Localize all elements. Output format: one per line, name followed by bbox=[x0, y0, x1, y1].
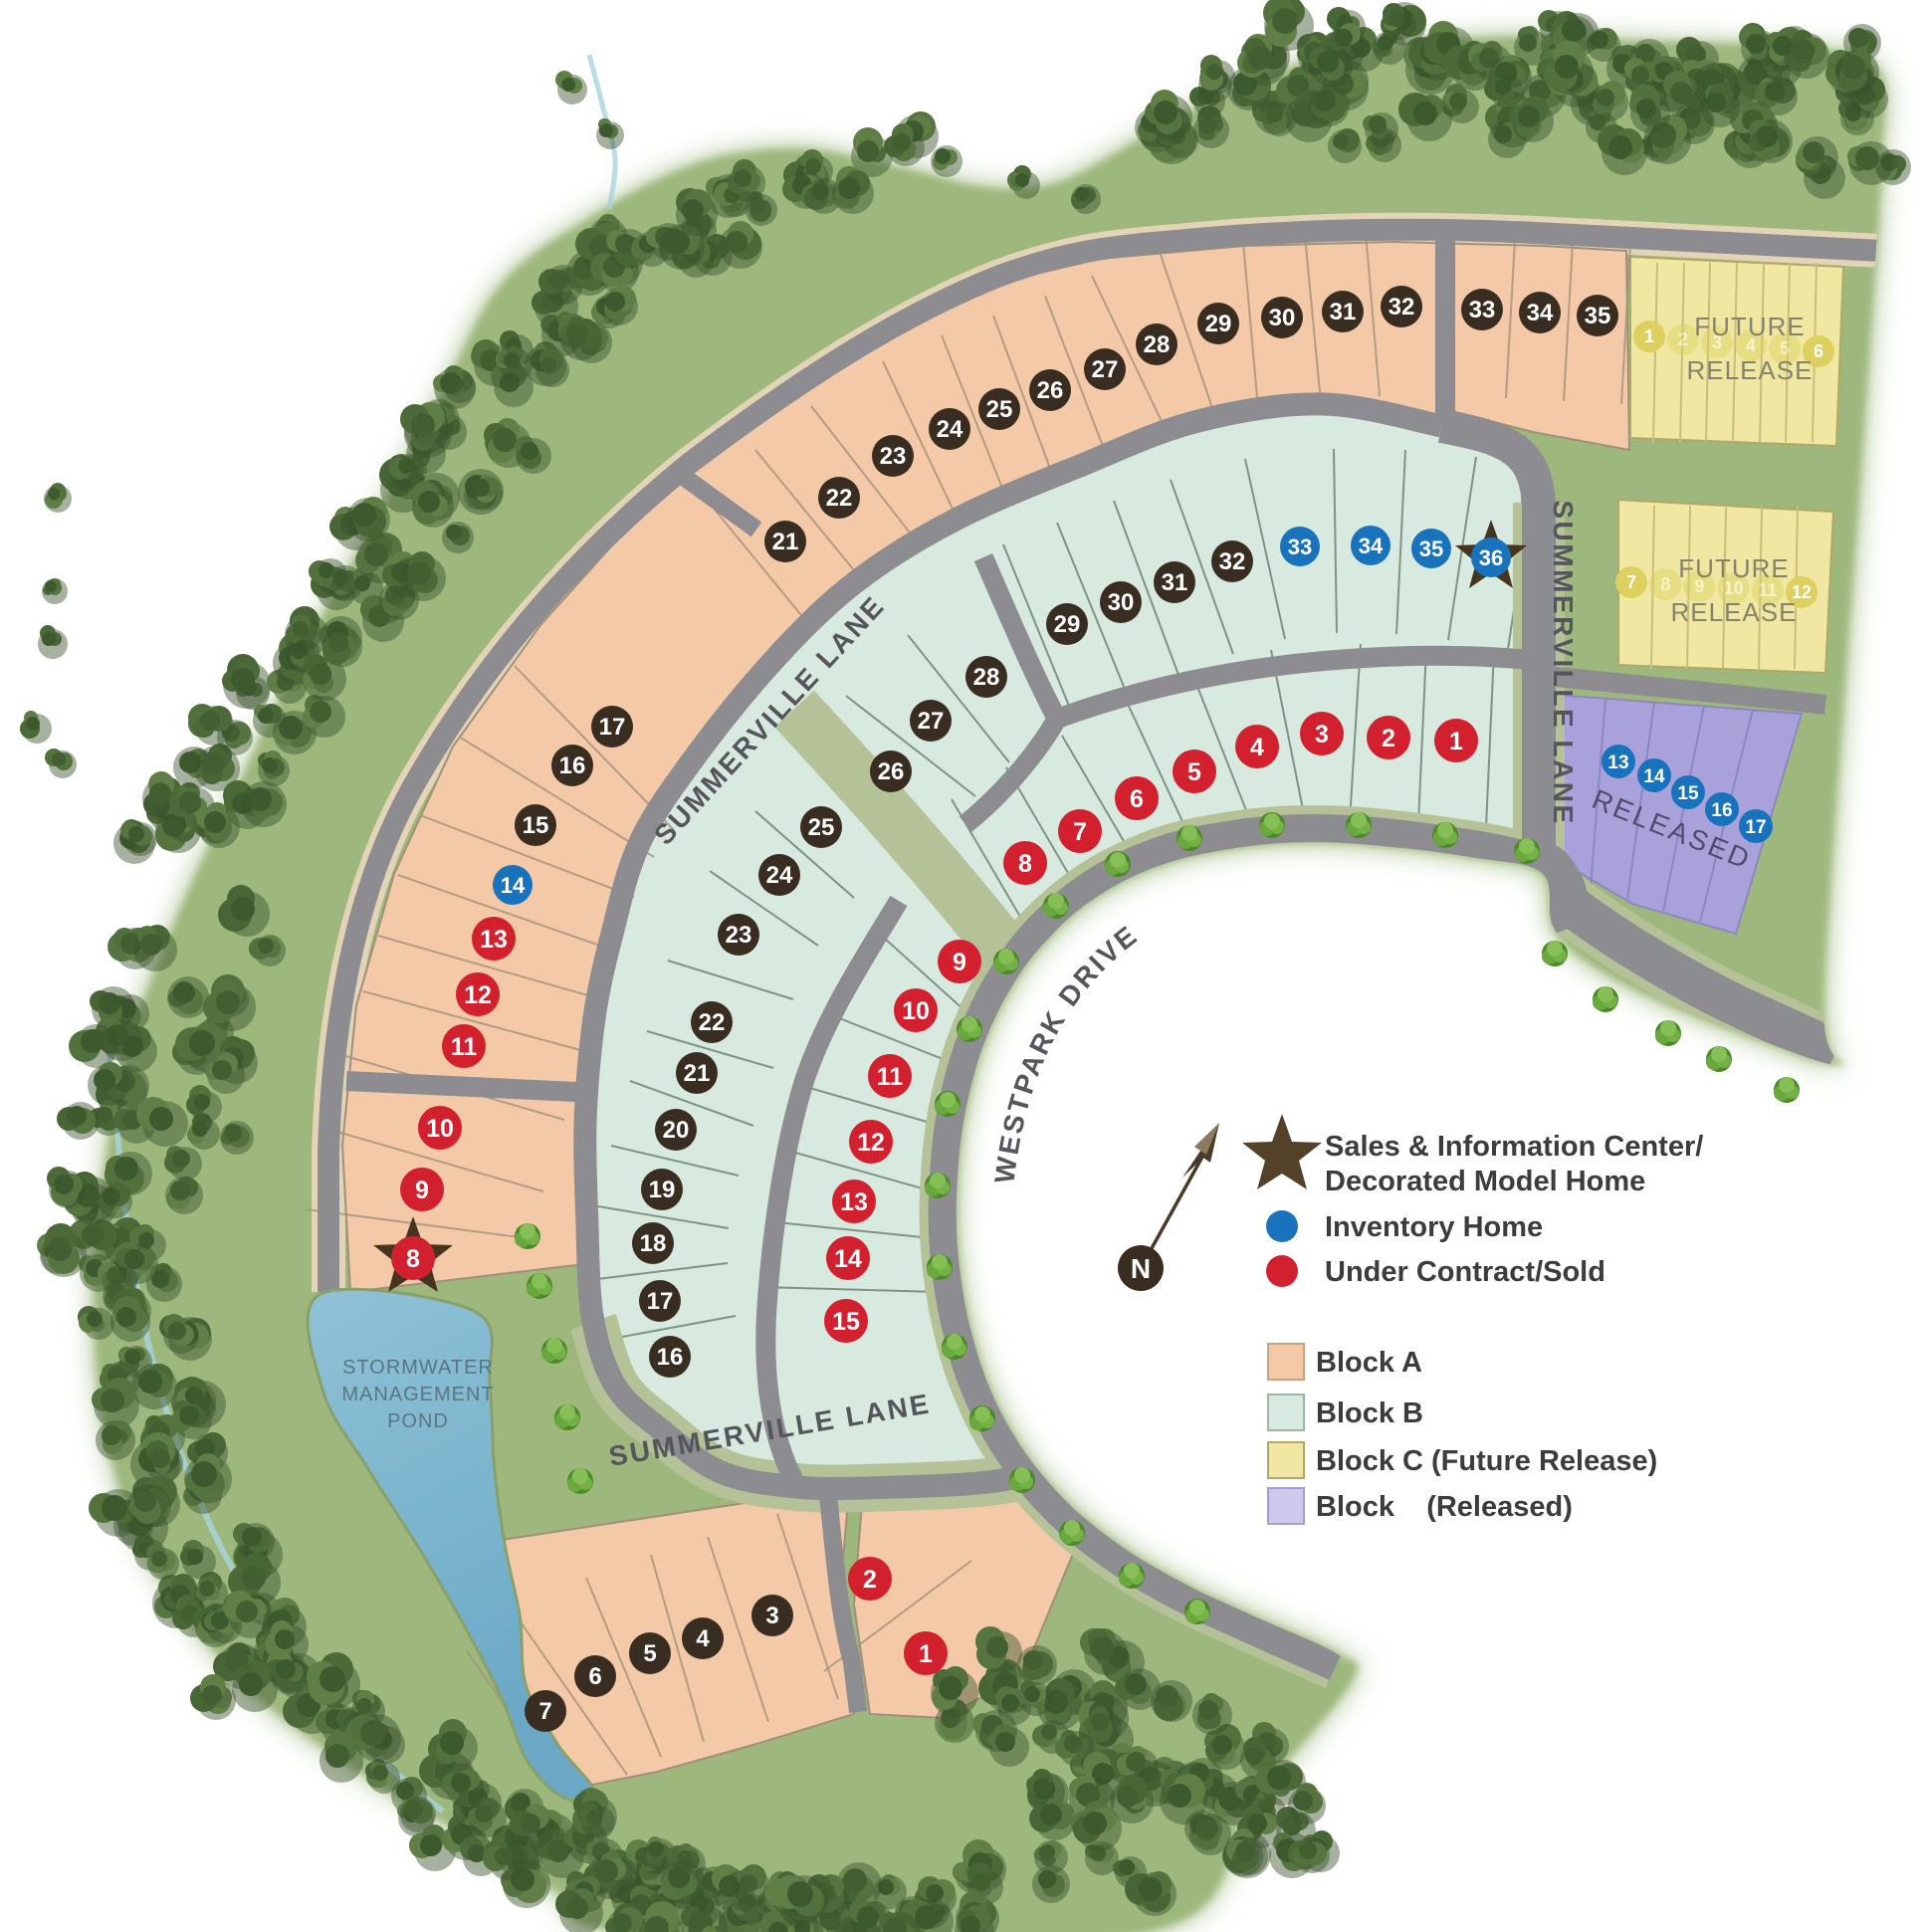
svg-text:25: 25 bbox=[808, 814, 835, 841]
svg-text:27: 27 bbox=[1092, 356, 1119, 383]
svg-text:33: 33 bbox=[1469, 297, 1496, 323]
svg-text:14: 14 bbox=[834, 1245, 862, 1273]
svg-text:6: 6 bbox=[1814, 341, 1823, 361]
svg-text:28: 28 bbox=[1144, 331, 1171, 358]
svg-text:34: 34 bbox=[1359, 534, 1384, 558]
svg-text:Block C (Future Release): Block C (Future Release) bbox=[1316, 1445, 1657, 1477]
svg-text:4: 4 bbox=[696, 1625, 710, 1652]
svg-text:35: 35 bbox=[1585, 303, 1611, 329]
svg-text:30: 30 bbox=[1108, 589, 1135, 616]
svg-text:1: 1 bbox=[1449, 728, 1463, 755]
svg-text:22: 22 bbox=[826, 485, 853, 512]
svg-text:36: 36 bbox=[1479, 545, 1503, 570]
svg-text:26: 26 bbox=[878, 758, 905, 785]
svg-text:Decorated Model Home: Decorated Model Home bbox=[1325, 1166, 1645, 1197]
svg-text:32: 32 bbox=[1389, 294, 1415, 321]
svg-text:12: 12 bbox=[857, 1129, 885, 1157]
svg-text:29: 29 bbox=[1205, 311, 1232, 337]
svg-text:12: 12 bbox=[464, 981, 492, 1009]
svg-text:31: 31 bbox=[1330, 299, 1357, 325]
svg-text:20: 20 bbox=[663, 1117, 690, 1144]
svg-text:16: 16 bbox=[1711, 800, 1732, 821]
svg-text:24: 24 bbox=[937, 416, 963, 443]
svg-text:16: 16 bbox=[559, 752, 586, 779]
svg-text:10: 10 bbox=[902, 997, 930, 1025]
svg-text:32: 32 bbox=[1219, 548, 1246, 575]
svg-text:23: 23 bbox=[726, 922, 752, 949]
svg-text:3: 3 bbox=[765, 1603, 778, 1629]
svg-text:2: 2 bbox=[1678, 329, 1688, 349]
svg-text:Block B: Block B bbox=[1316, 1397, 1423, 1429]
svg-text:17: 17 bbox=[1745, 817, 1766, 838]
svg-text:15: 15 bbox=[523, 812, 549, 839]
svg-text:21: 21 bbox=[684, 1060, 711, 1087]
svg-text:8: 8 bbox=[406, 1245, 420, 1273]
svg-text:13: 13 bbox=[1607, 752, 1628, 773]
svg-text:9: 9 bbox=[415, 1177, 429, 1204]
svg-text:6: 6 bbox=[588, 1663, 601, 1690]
svg-text:2: 2 bbox=[1382, 725, 1395, 752]
svg-text:5: 5 bbox=[1187, 758, 1201, 786]
svg-text:Inventory Home: Inventory Home bbox=[1325, 1211, 1543, 1243]
svg-text:Block (Released): Block (Released) bbox=[1316, 1491, 1573, 1523]
svg-text:16: 16 bbox=[657, 1344, 684, 1371]
svg-text:STORMWATER: STORMWATER bbox=[342, 1357, 494, 1379]
svg-text:17: 17 bbox=[599, 714, 626, 741]
svg-text:14: 14 bbox=[501, 873, 526, 898]
svg-text:34: 34 bbox=[1527, 300, 1554, 326]
svg-text:25: 25 bbox=[986, 396, 1013, 423]
svg-text:18: 18 bbox=[640, 1230, 667, 1257]
svg-text:9: 9 bbox=[953, 949, 966, 976]
svg-text:N: N bbox=[1131, 1253, 1151, 1284]
svg-text:14: 14 bbox=[1643, 766, 1665, 787]
svg-text:SUMMERVILLE LANE: SUMMERVILLE LANE bbox=[1548, 500, 1579, 825]
svg-text:23: 23 bbox=[880, 443, 907, 470]
svg-text:19: 19 bbox=[649, 1177, 676, 1203]
svg-text:15: 15 bbox=[832, 1308, 860, 1336]
svg-text:26: 26 bbox=[1037, 377, 1064, 404]
svg-text:22: 22 bbox=[699, 1009, 726, 1036]
svg-text:35: 35 bbox=[1419, 537, 1443, 561]
svg-text:Sales & Information Center/: Sales & Information Center/ bbox=[1325, 1131, 1703, 1163]
svg-text:28: 28 bbox=[973, 664, 1000, 691]
svg-text:7: 7 bbox=[538, 1698, 551, 1725]
svg-text:1: 1 bbox=[919, 1640, 933, 1668]
svg-text:FUTURE: FUTURE bbox=[1678, 553, 1789, 583]
svg-text:7: 7 bbox=[1073, 818, 1087, 846]
svg-text:1: 1 bbox=[1644, 326, 1654, 346]
svg-text:RELEASE: RELEASE bbox=[1687, 355, 1814, 385]
svg-text:13: 13 bbox=[480, 926, 508, 954]
svg-text:29: 29 bbox=[1054, 611, 1081, 638]
svg-text:7: 7 bbox=[1626, 572, 1636, 592]
svg-text:17: 17 bbox=[647, 1288, 674, 1315]
svg-text:Block A: Block A bbox=[1316, 1347, 1422, 1379]
svg-text:8: 8 bbox=[1660, 574, 1670, 594]
svg-text:5: 5 bbox=[643, 1640, 656, 1667]
svg-text:MANAGEMENT: MANAGEMENT bbox=[341, 1384, 494, 1405]
svg-text:24: 24 bbox=[766, 862, 793, 889]
svg-text:11: 11 bbox=[877, 1063, 904, 1091]
svg-text:11: 11 bbox=[451, 1033, 478, 1061]
svg-text:10: 10 bbox=[426, 1115, 454, 1143]
svg-text:2: 2 bbox=[863, 1566, 877, 1594]
svg-text:6: 6 bbox=[1130, 785, 1144, 813]
svg-text:21: 21 bbox=[772, 529, 799, 555]
svg-text:15: 15 bbox=[1677, 783, 1699, 804]
svg-text:Under Contract/Sold: Under Contract/Sold bbox=[1325, 1256, 1605, 1288]
svg-text:31: 31 bbox=[1162, 569, 1188, 596]
svg-text:27: 27 bbox=[918, 708, 945, 735]
svg-text:13: 13 bbox=[840, 1188, 868, 1216]
svg-text:30: 30 bbox=[1269, 305, 1296, 331]
svg-text:33: 33 bbox=[1288, 535, 1312, 559]
svg-text:8: 8 bbox=[1018, 850, 1032, 878]
svg-text:4: 4 bbox=[1250, 734, 1264, 761]
svg-text:RELEASE: RELEASE bbox=[1671, 597, 1798, 627]
svg-text:POND: POND bbox=[387, 1410, 449, 1432]
svg-text:3: 3 bbox=[1315, 721, 1329, 749]
svg-text:FUTURE: FUTURE bbox=[1694, 312, 1805, 341]
